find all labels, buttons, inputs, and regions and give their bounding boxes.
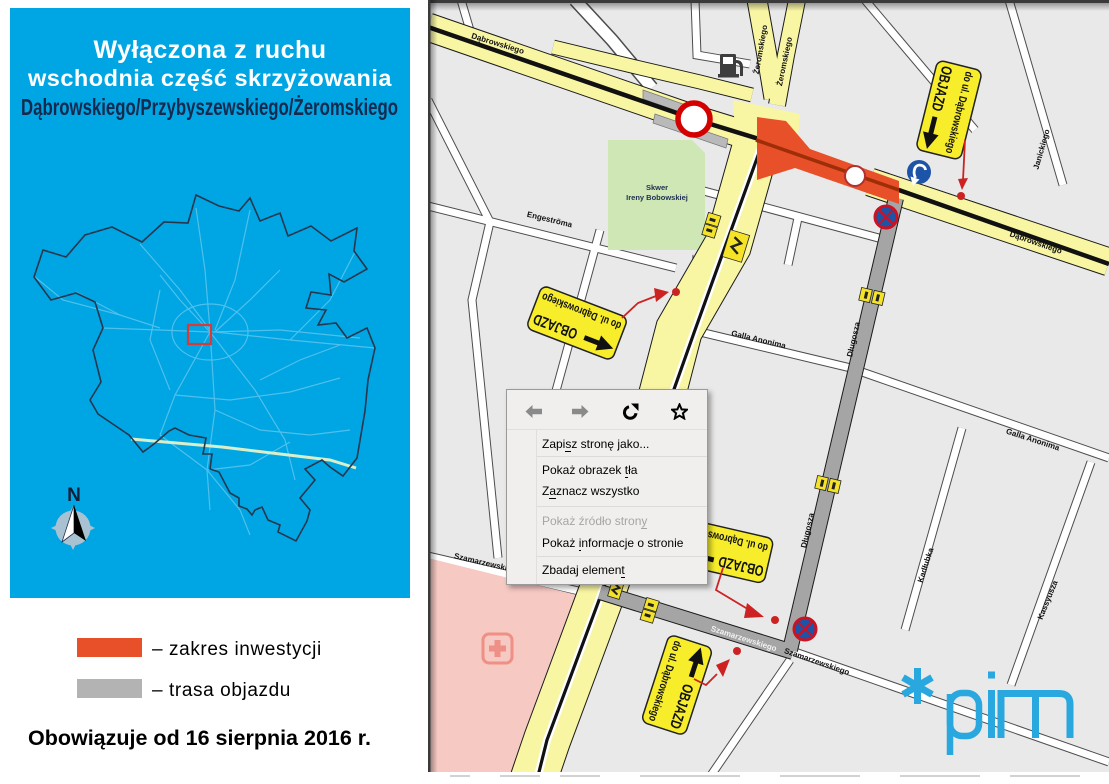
svg-text:Ireny Bobowskiej: Ireny Bobowskiej — [626, 193, 688, 202]
svg-text:Skwer: Skwer — [646, 183, 668, 192]
svg-text:N: N — [67, 485, 81, 506]
